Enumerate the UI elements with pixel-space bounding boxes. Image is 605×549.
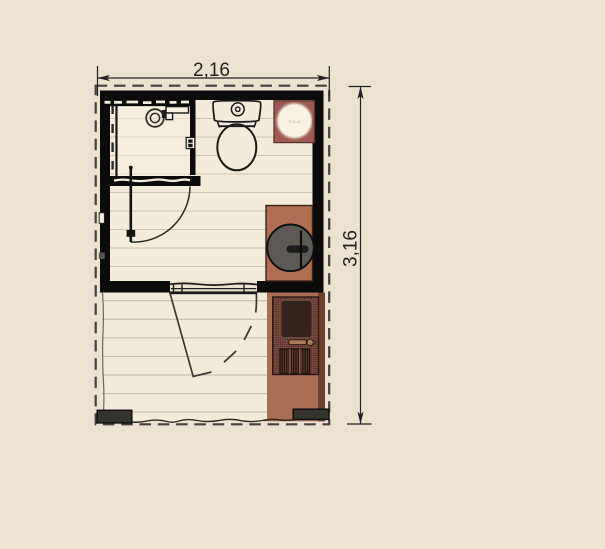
- svg-text:2,16: 2,16: [193, 60, 230, 81]
- svg-text:b.o.i.l: b.o.i.l: [289, 119, 300, 124]
- svg-text:3,16: 3,16: [341, 230, 362, 267]
